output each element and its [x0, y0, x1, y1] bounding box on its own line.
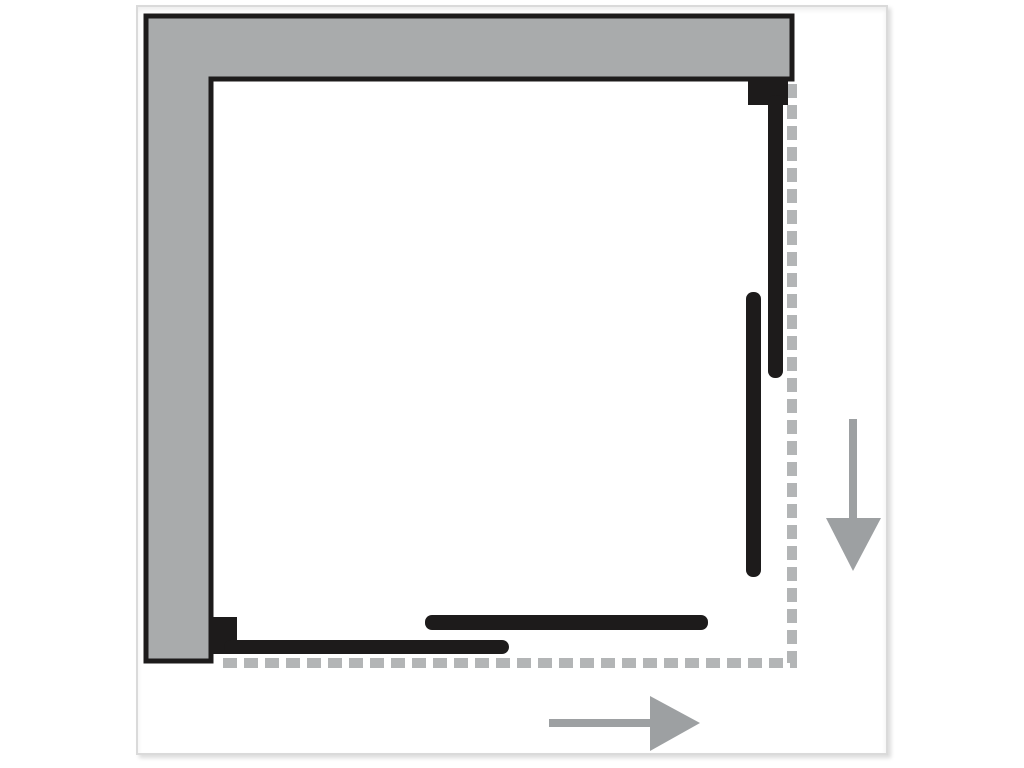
shower-enclosure-diagram [0, 0, 1024, 768]
right-door-fixed-panel [768, 95, 783, 378]
bottom-door-sliding-panel [425, 615, 708, 630]
slide-direction-right-arrow-icon [549, 696, 700, 751]
diagram-canvas [0, 0, 1024, 768]
right-door-sliding-panel [746, 292, 761, 577]
wall-l-shape [146, 16, 792, 661]
enclosure-footprint-dashed-line [216, 84, 792, 663]
down-arrow-head [826, 518, 881, 571]
slide-direction-down-arrow-icon [826, 419, 881, 571]
bottom-door-fixed-panel [224, 640, 509, 654]
right-arrow-head [650, 696, 700, 751]
